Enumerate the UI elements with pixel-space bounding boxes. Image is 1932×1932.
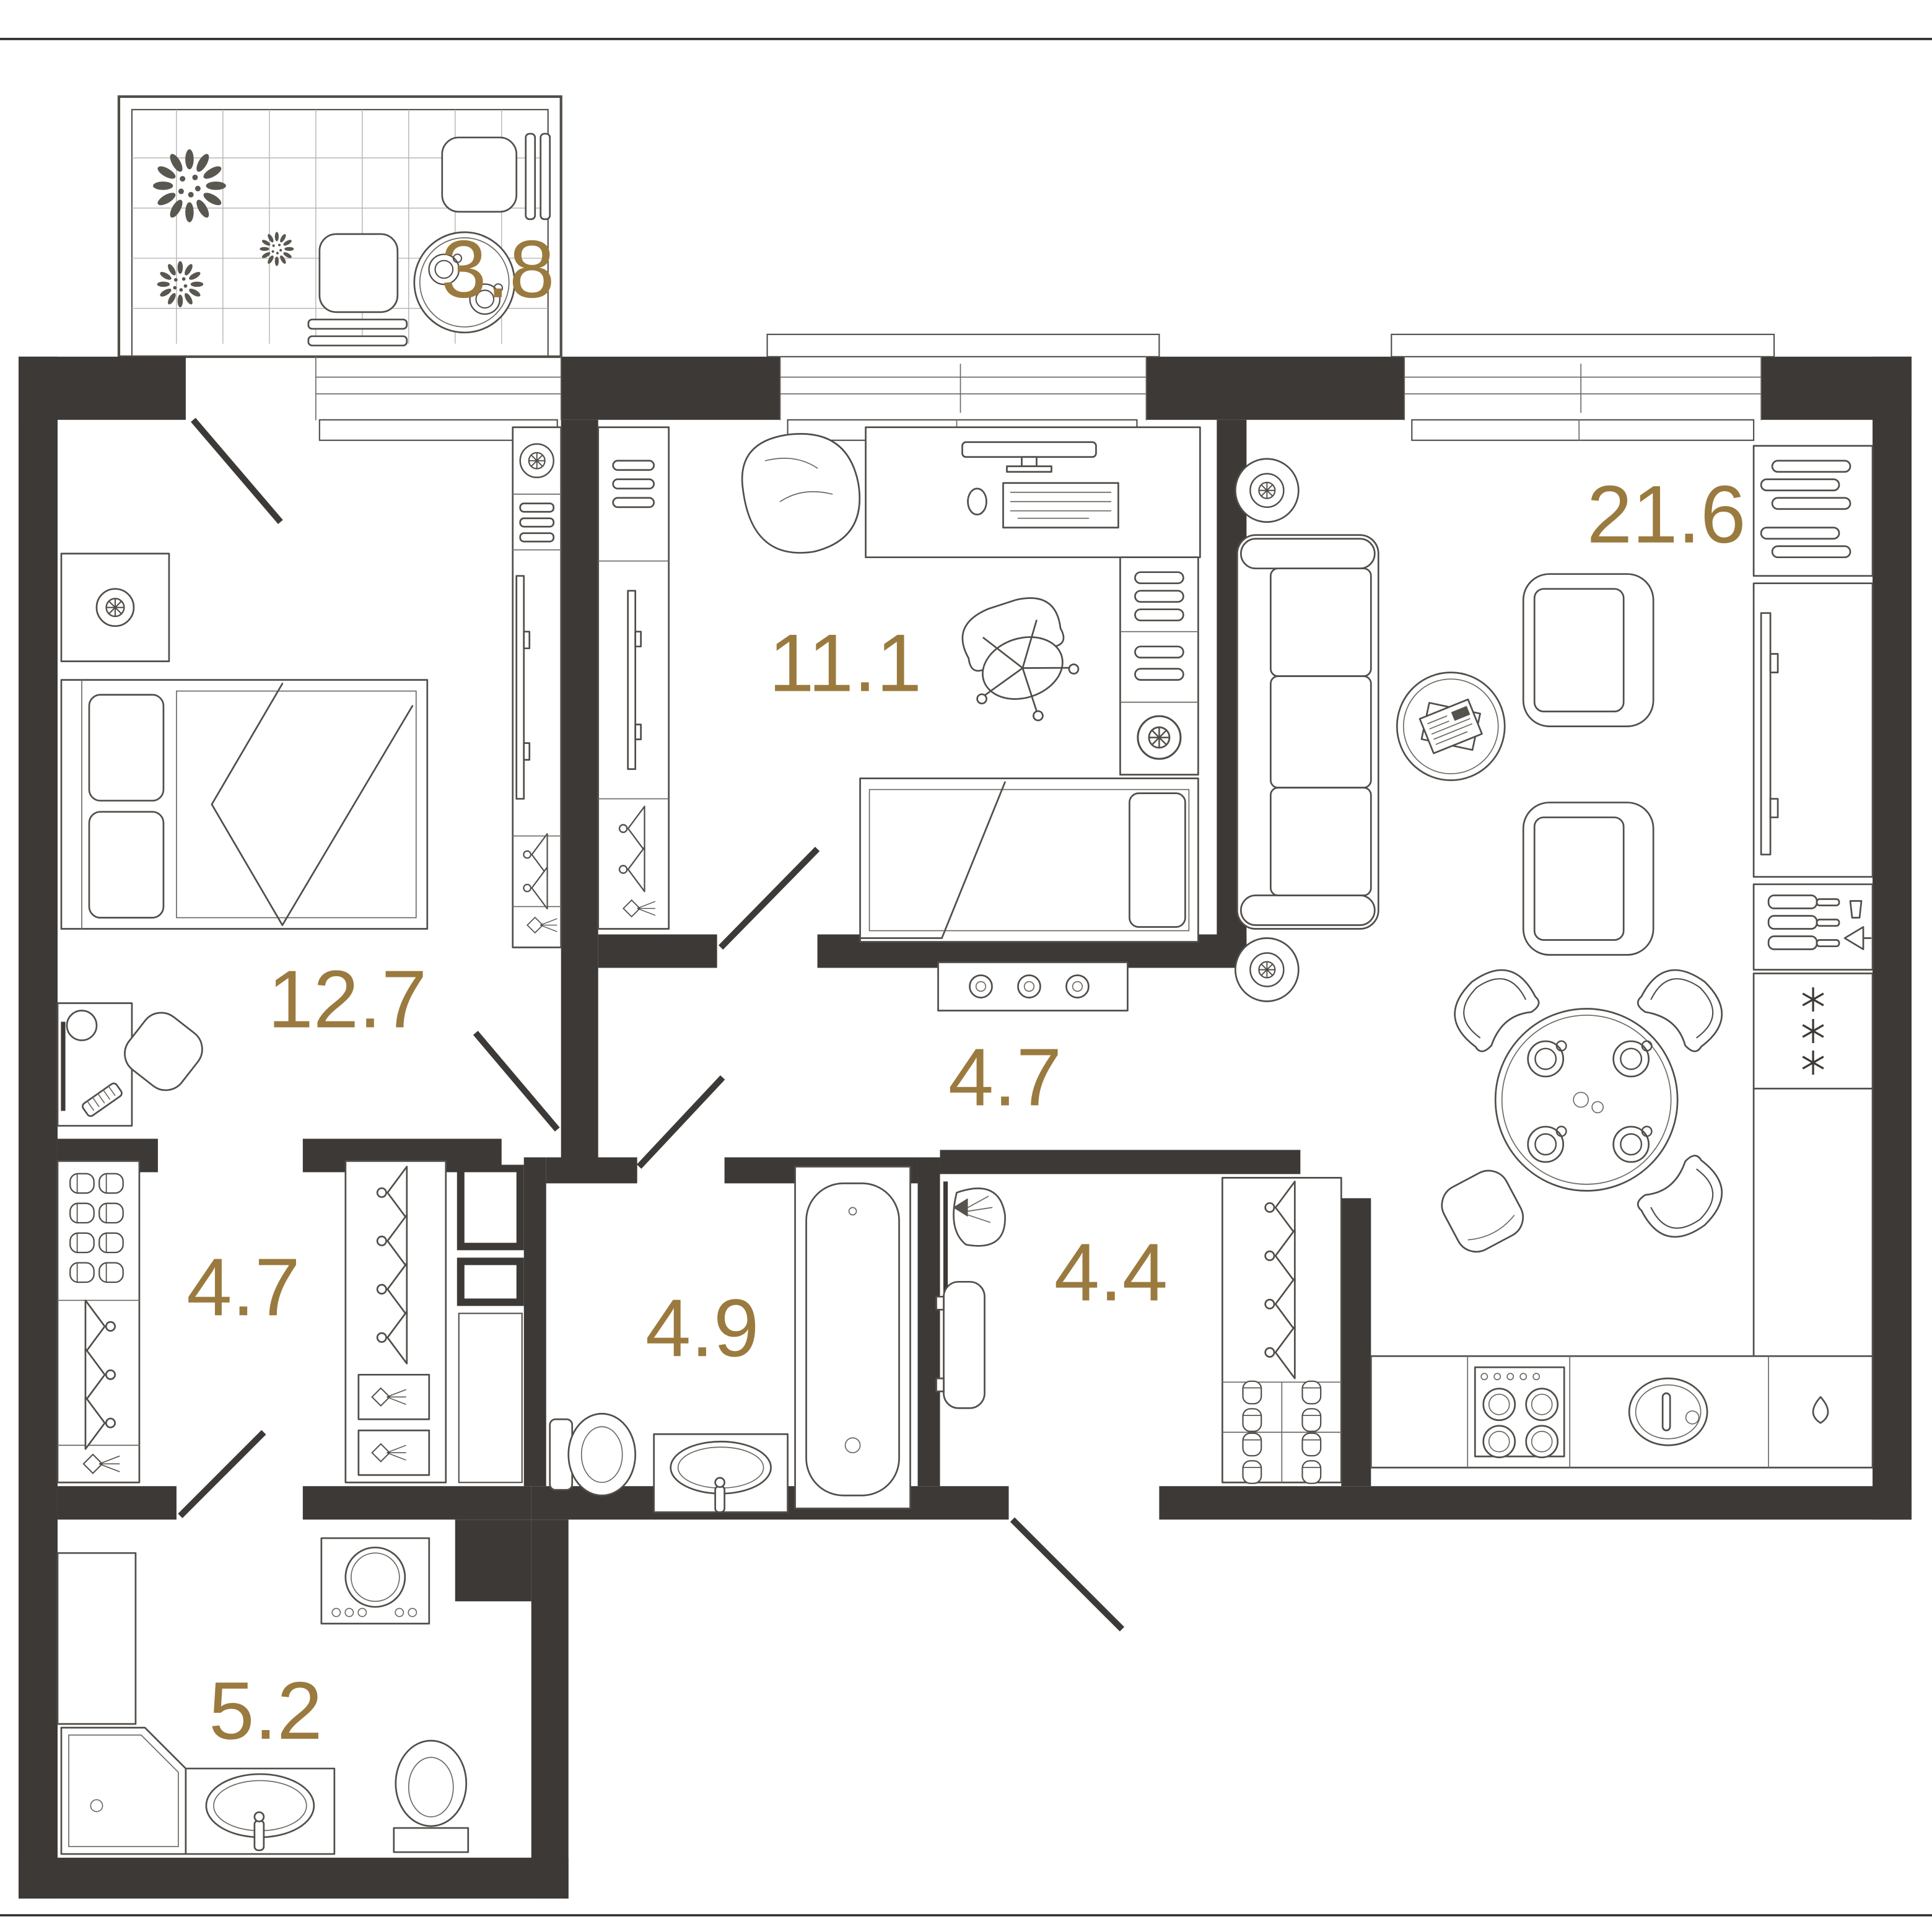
kitchen-sink (1629, 1378, 1707, 1445)
vent-shafts (459, 1168, 522, 1482)
bathroom-door-leaf (639, 1077, 723, 1166)
window-living (1391, 334, 1774, 440)
bedroom: 12.7 (58, 427, 561, 1126)
hallway: 4.7 (938, 963, 1128, 1123)
toilet (394, 1741, 468, 1852)
dining-set (1435, 955, 1736, 1259)
child-room: 11.1 (598, 427, 1200, 942)
bedroom-door-leaf (476, 1033, 557, 1129)
sofa (1237, 535, 1378, 929)
kitchen-counter (1371, 1356, 1873, 1467)
monitor-icon (963, 442, 1096, 457)
tv-icon (517, 576, 524, 799)
lamp-icon (1138, 716, 1181, 759)
desk (866, 427, 1200, 557)
plant-icon (157, 261, 204, 308)
dressing-radiator (937, 1282, 985, 1408)
child-room-door-leaf (721, 849, 818, 948)
armchair (1523, 574, 1653, 727)
entry-door-leaf (1012, 1519, 1122, 1629)
nightstand (61, 554, 169, 662)
dining-stool (1435, 1163, 1530, 1259)
stove (1475, 1367, 1564, 1457)
child-wardrobe-right (1120, 557, 1198, 775)
room-label-living: 21.6 (1587, 469, 1746, 560)
room-label-hallway: 4.7 (948, 1031, 1062, 1122)
vanity (58, 1003, 211, 1126)
kitchen-tall-cabinet (1754, 1088, 1873, 1356)
balcony-stool (308, 234, 407, 346)
tv-icon (1761, 613, 1770, 855)
dressing-wardrobe (1222, 1178, 1341, 1483)
room-label-bathroom: 4.9 (645, 1282, 759, 1373)
child-wardrobe-left (598, 427, 669, 929)
coffee-table (1397, 673, 1505, 780)
room-label-child-room: 11.1 (769, 618, 922, 709)
office-chair (951, 588, 1090, 737)
dressing-room: 4.4 (937, 1178, 1342, 1483)
shower-tray (61, 1728, 186, 1854)
room-label-balcony: 3.8 (441, 224, 554, 315)
toilet (550, 1414, 636, 1495)
hall-console (938, 963, 1128, 1011)
closet-right-column (346, 1161, 446, 1482)
floor-lamp (1235, 938, 1298, 1002)
tall-cabinet (58, 1553, 136, 1724)
plant-icon (260, 232, 294, 266)
bathroom-sink (654, 1434, 788, 1512)
shower-sink (186, 1768, 334, 1854)
bottle-icon (1768, 896, 1839, 950)
closet-left-column (58, 1161, 139, 1482)
closet: 4.7 (58, 1161, 446, 1482)
bar-shelf (1754, 885, 1873, 970)
bean-bag (742, 434, 860, 553)
room-label-bedroom: 12.7 (268, 953, 427, 1044)
mouse-icon (968, 489, 986, 515)
shelf-glasses (1754, 446, 1873, 576)
shower-room-door-leaf (180, 1432, 264, 1516)
fridge (1754, 973, 1873, 1088)
double-bed (61, 680, 427, 929)
balcony-door-leaf (193, 420, 281, 522)
tv-stand (1754, 584, 1873, 877)
armchair (1523, 803, 1653, 955)
bathtub (795, 1166, 911, 1508)
floor-plan: 12.7 (0, 0, 1932, 1932)
floor-plan-page: 12.7 (0, 0, 1932, 1932)
room-label-dressing: 4.4 (1054, 1226, 1168, 1318)
lamp-icon (97, 589, 134, 626)
room-label-shower: 5.2 (209, 1665, 322, 1756)
room-label-closet: 4.7 (186, 1241, 300, 1332)
balcony-stool (442, 134, 550, 219)
window-child-room (767, 334, 1160, 440)
keyboard-icon (1003, 483, 1118, 528)
bedroom-wardrobe (513, 427, 561, 948)
washing-machine (321, 1538, 429, 1624)
floor-lamp (1235, 459, 1298, 522)
plant-icon (153, 149, 226, 222)
lamp-icon (520, 444, 554, 478)
windows (316, 334, 1774, 440)
shower-room: 5.2 (58, 1538, 468, 1854)
bathroom: 4.9 (550, 1166, 911, 1512)
single-bed (860, 779, 1199, 942)
tv-icon (628, 591, 636, 769)
